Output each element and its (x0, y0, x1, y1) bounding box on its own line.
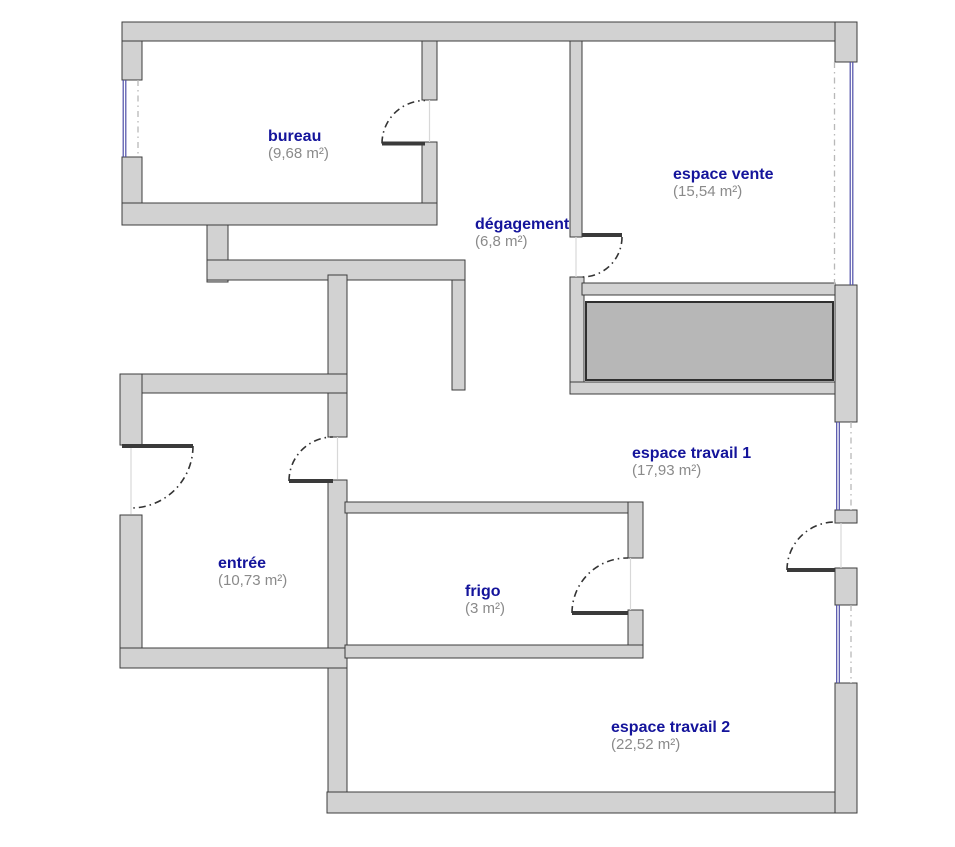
wall-frigo-right-upper (628, 502, 643, 558)
wall-right-top-block (835, 22, 857, 62)
wall-top-wall (122, 22, 857, 41)
room-area-espace-travail-1: (17,93 m²) (632, 462, 701, 479)
wall-frigo-bottom (345, 645, 643, 658)
floor-plan: bureau(9,68 m²)espace vente(15,54 m²)dég… (0, 0, 955, 847)
room-label-entree: entrée (218, 555, 266, 572)
wall-bureau-right-upper (422, 41, 437, 100)
room-area-degagement: (6,8 m²) (475, 233, 528, 250)
room-label-bureau: bureau (268, 128, 321, 145)
entree-inner-door-swing-arc (289, 437, 333, 481)
floor-plan-svg: bureau(9,68 m²)espace vente(15,54 m²)dég… (0, 0, 955, 847)
shaded-block (586, 302, 833, 380)
room-label-frigo: frigo (465, 583, 501, 600)
room-label-espace-vente: espace vente (673, 166, 774, 183)
frigo-door-swing-arc (572, 558, 628, 613)
wall-frigo-top (345, 502, 643, 513)
room-label-espace-travail-2: espace travail 2 (611, 719, 730, 736)
room-label-degagement: dégagement (475, 216, 570, 233)
wall-below-block-wall (570, 382, 835, 394)
wall-right-bottom (835, 683, 857, 813)
wall-corridor-right (452, 280, 465, 390)
wall-travail2-left (328, 480, 347, 813)
wall-right-mid-3 (835, 568, 857, 605)
wall-entree-top (120, 374, 347, 393)
wall-bureau-right-lower (422, 142, 437, 203)
travail-right-door-swing-arc (787, 522, 835, 570)
wall-bureau-bottom (122, 203, 437, 225)
wall-vente-left-upper (570, 41, 582, 237)
wall-entree-left-lower (120, 515, 142, 667)
wall-entree-right-upper (328, 275, 347, 437)
room-area-frigo: (3 m²) (465, 600, 505, 617)
room-area-bureau: (9,68 m²) (268, 145, 329, 162)
wall-right-mid-2 (835, 510, 857, 523)
wall-entree-bottom (120, 648, 347, 668)
vente-door-swing-arc (582, 237, 622, 277)
wall-vente-bottom (582, 283, 835, 295)
room-area-entree: (10,73 m²) (218, 572, 287, 589)
wall-bureau-left-upper (122, 41, 142, 80)
room-area-espace-vente: (15,54 m²) (673, 183, 742, 200)
room-area-espace-travail-2: (22,52 m²) (611, 736, 680, 753)
wall-bottom-wall (327, 792, 857, 813)
wall-right-mid-1 (835, 285, 857, 422)
bureau-door-swing-arc (382, 101, 425, 144)
wall-entree-left-upper (120, 374, 142, 445)
front-door-swing-arc (131, 446, 193, 508)
room-label-espace-travail-1: espace travail 1 (632, 445, 751, 462)
